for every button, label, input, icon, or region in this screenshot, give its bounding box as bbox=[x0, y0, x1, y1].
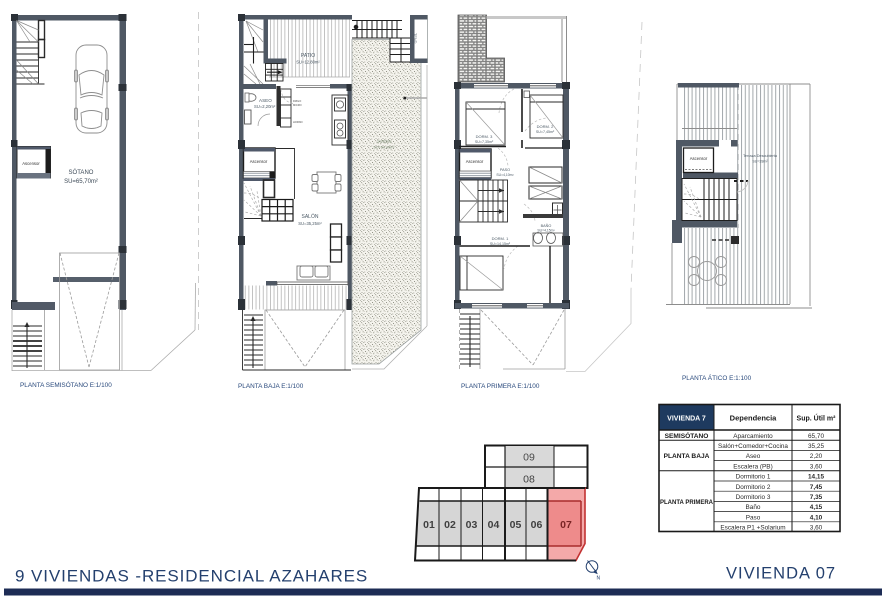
svg-text:SU=64,40m²: SU=64,40m² bbox=[373, 146, 395, 150]
svg-text:7,35: 7,35 bbox=[810, 494, 823, 501]
svg-text:02: 02 bbox=[444, 519, 456, 531]
svg-text:07: 07 bbox=[560, 519, 572, 531]
svg-text:Baño: Baño bbox=[746, 504, 761, 511]
svg-text:VIVIENDA 7: VIVIENDA 7 bbox=[667, 416, 706, 423]
svg-text:PASO: PASO bbox=[500, 168, 510, 172]
svg-text:HORNO: HORNO bbox=[293, 120, 303, 124]
svg-text:Dormitorio 1: Dormitorio 1 bbox=[736, 474, 771, 481]
svg-text:PLANTA BAJA E:1/100: PLANTA BAJA E:1/100 bbox=[238, 383, 304, 390]
svg-text:Ascensor: Ascensor bbox=[690, 156, 708, 161]
svg-text:SEMISÓTANO: SEMISÓTANO bbox=[665, 431, 709, 440]
svg-text:JARDÍN: JARDÍN bbox=[376, 139, 391, 144]
svg-text:SU=12,80m²: SU=12,80m² bbox=[296, 60, 320, 65]
svg-text:DORM. 3: DORM. 3 bbox=[476, 134, 493, 139]
svg-text:Ascensor: Ascensor bbox=[22, 161, 40, 166]
svg-text:35,25: 35,25 bbox=[808, 443, 824, 450]
svg-text:SU=2,20m²: SU=2,20m² bbox=[254, 104, 276, 109]
svg-text:7,45: 7,45 bbox=[810, 484, 823, 491]
svg-text:SÓTANO: SÓTANO bbox=[69, 169, 94, 176]
svg-text:04: 04 bbox=[488, 519, 500, 531]
svg-text:SU=14,15m²: SU=14,15m² bbox=[490, 242, 511, 246]
svg-text:TEND.: TEND. bbox=[413, 33, 417, 44]
svg-text:Aseo: Aseo bbox=[746, 453, 761, 460]
svg-text:Dependencia: Dependencia bbox=[730, 414, 778, 423]
svg-text:PLANTA BAJA: PLANTA BAJA bbox=[664, 453, 710, 460]
svg-text:Terraza Descubierta: Terraza Descubierta bbox=[743, 154, 778, 158]
svg-text:Aparcamiento: Aparcamiento bbox=[733, 433, 773, 440]
svg-text:Salón+Comedor+Cocina: Salón+Comedor+Cocina bbox=[718, 443, 788, 450]
svg-text:N: N bbox=[597, 576, 601, 582]
svg-text:SU=28m²: SU=28m² bbox=[752, 160, 768, 164]
svg-text:2,20: 2,20 bbox=[810, 453, 823, 460]
svg-text:SU=4,10m²: SU=4,10m² bbox=[496, 173, 514, 177]
svg-text:SU=7,45m²: SU=7,45m² bbox=[536, 130, 555, 134]
svg-text:08: 08 bbox=[523, 474, 535, 486]
svg-text:BAÑO: BAÑO bbox=[541, 223, 552, 228]
svg-text:Dormitorio 3: Dormitorio 3 bbox=[736, 494, 771, 501]
svg-text:SU=7,35m²: SU=7,35m² bbox=[475, 140, 494, 144]
svg-text:SU=35,25m²: SU=35,25m² bbox=[298, 221, 322, 226]
svg-text:PLANTA ÁTICO E:1:100: PLANTA ÁTICO E:1:100 bbox=[682, 373, 752, 382]
svg-text:ASEO: ASEO bbox=[259, 98, 272, 103]
svg-text:PATIO: PATIO bbox=[301, 53, 315, 59]
svg-text:SALÓN: SALÓN bbox=[302, 213, 319, 220]
svg-text:03: 03 bbox=[466, 519, 478, 531]
svg-text:4,15: 4,15 bbox=[810, 504, 823, 511]
svg-text:SU=65,70m²: SU=65,70m² bbox=[64, 179, 98, 185]
svg-text:3,60: 3,60 bbox=[810, 463, 823, 470]
svg-text:06: 06 bbox=[531, 519, 543, 531]
svg-text:PLANTA PRIMERA: PLANTA PRIMERA bbox=[660, 500, 714, 506]
svg-text:Sup. Útil m²: Sup. Útil m² bbox=[797, 414, 837, 423]
svg-text:SU=4,15m²: SU=4,15m² bbox=[537, 229, 555, 233]
svg-text:3,60: 3,60 bbox=[810, 525, 823, 532]
svg-text:Dormitorio 2: Dormitorio 2 bbox=[736, 484, 771, 491]
svg-text:Ascensor: Ascensor bbox=[250, 159, 268, 164]
svg-text:05: 05 bbox=[510, 519, 522, 531]
svg-text:Escalera P1 +Solarium: Escalera P1 +Solarium bbox=[720, 525, 785, 532]
svg-text:Paso: Paso bbox=[746, 514, 761, 521]
svg-text:14,15: 14,15 bbox=[808, 474, 824, 481]
svg-text:Ascensor: Ascensor bbox=[466, 159, 484, 164]
svg-text:65,70: 65,70 bbox=[808, 433, 824, 440]
svg-text:VIVIENDA 07: VIVIENDA 07 bbox=[726, 565, 836, 583]
svg-text:PLANTA SEMISÓTANO E:1/100: PLANTA SEMISÓTANO E:1/100 bbox=[20, 380, 112, 389]
svg-text:Escalera (PB): Escalera (PB) bbox=[733, 463, 772, 470]
svg-text:FRIGO: FRIGO bbox=[293, 99, 301, 103]
svg-text:4,10: 4,10 bbox=[810, 514, 823, 521]
svg-text:09: 09 bbox=[523, 452, 535, 464]
svg-text:PLANTA PRIMERA E:1/100: PLANTA PRIMERA E:1/100 bbox=[461, 383, 540, 390]
svg-text:DORM. 1: DORM. 1 bbox=[492, 236, 509, 241]
svg-text:MICRO: MICRO bbox=[293, 103, 302, 107]
svg-text:DORM. 2: DORM. 2 bbox=[537, 124, 554, 129]
svg-text:01: 01 bbox=[423, 519, 435, 531]
svg-text:9 VIVIENDAS -RESIDENCIAL AZAHA: 9 VIVIENDAS -RESIDENCIAL AZAHARES bbox=[15, 567, 368, 586]
